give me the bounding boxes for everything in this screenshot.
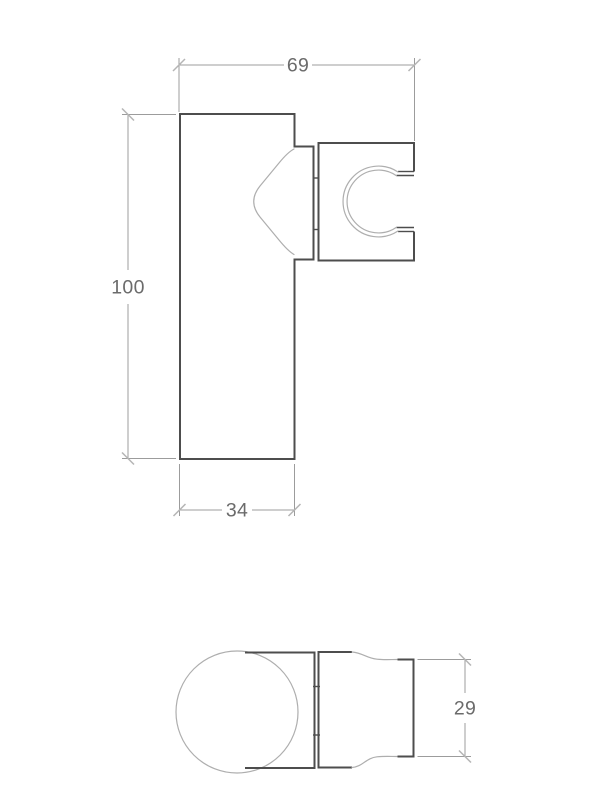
bracket-taper-top-curve	[352, 652, 398, 660]
dimension-label-end-height: 29	[454, 698, 476, 720]
bracket-plan-right-outline	[398, 660, 414, 757]
dimension-label-top-width: 69	[287, 55, 309, 77]
wall-plate-circle	[176, 651, 298, 773]
body-plan-outline	[245, 653, 315, 769]
front-view: 69 100 34	[111, 55, 420, 522]
dimension-height: 100	[111, 109, 176, 465]
cone-profile-line	[254, 149, 294, 255]
technical-drawing-canvas: 69 100 34	[0, 0, 602, 800]
holder-bracket-outline	[319, 143, 415, 261]
body-outline	[180, 114, 314, 459]
bracket-taper-bottom-curve	[352, 756, 398, 767]
dimension-end-height: 29	[418, 654, 477, 763]
dimension-bottom-width: 34	[174, 464, 301, 522]
shower-holder-dimension-drawing: 69 100 34	[0, 0, 602, 800]
plan-view: 29	[176, 651, 476, 773]
dimension-top-width: 69	[173, 55, 421, 142]
clamp-ring-outer-arc	[343, 166, 398, 237]
clamp-ring-inner-arc	[347, 170, 396, 233]
dimension-label-height: 100	[111, 277, 144, 299]
dimension-label-bottom-width: 34	[226, 500, 248, 522]
bracket-plan-left-outline	[319, 652, 353, 768]
